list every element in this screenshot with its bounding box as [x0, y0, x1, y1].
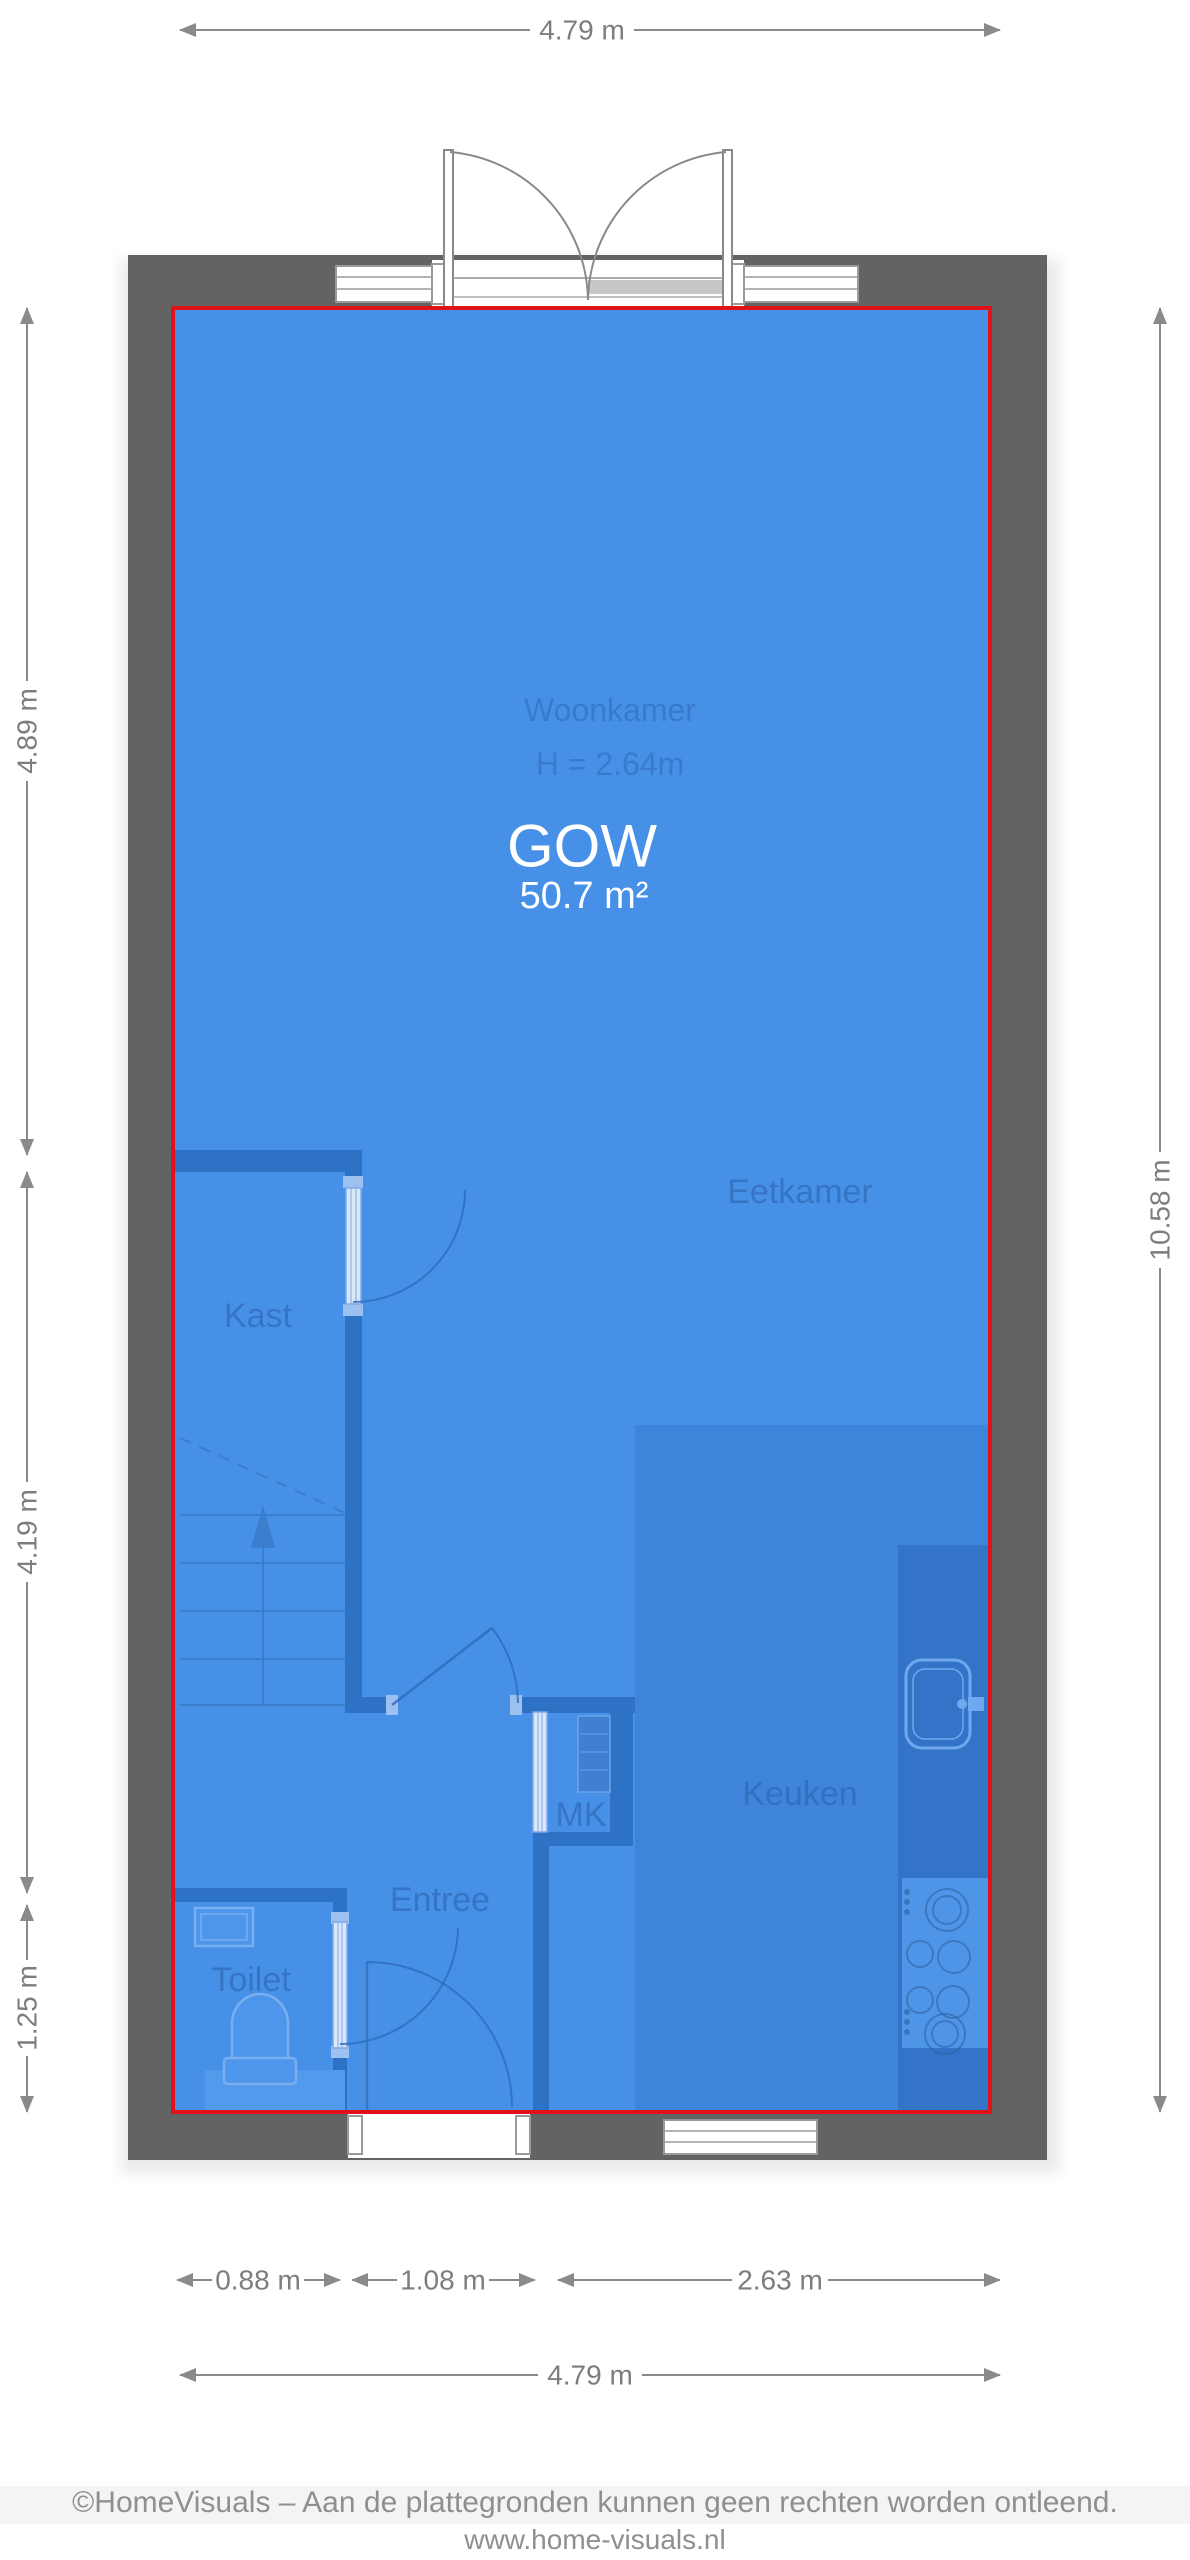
entree-keuken-wall	[533, 1845, 549, 2112]
mk-right-wall	[610, 1698, 633, 1845]
room-label-keuken: Keuken	[742, 1775, 857, 1813]
cooktop-icon	[902, 1878, 988, 2054]
hall-wall-left	[345, 1697, 388, 1713]
footer-website: www.home-visuals.nl	[463, 2524, 725, 2555]
kitchen-counter	[898, 1545, 988, 2112]
room-label-mk: MK	[556, 1796, 607, 1834]
svg-text:1.25 m: 1.25 m	[12, 1965, 43, 2051]
wall-bottom	[128, 2112, 1047, 2160]
kast-top-wall	[175, 1150, 362, 1172]
svg-text:0.88 m: 0.88 m	[215, 2265, 301, 2296]
floorplan-canvas: Woonkamer H = 2.64m GOW 50.7 m² Eetkamer…	[0, 0, 1190, 2560]
kast-right-wall-lower	[345, 1316, 362, 1700]
mk-bottom-wall	[533, 1832, 633, 1846]
room-label-kast: Kast	[224, 1297, 293, 1335]
svg-text:4.79 m: 4.79 m	[539, 15, 625, 46]
dimension-left-3: 1.25 m	[9, 1905, 45, 2112]
room-label-eetkamer: Eetkamer	[727, 1173, 873, 1211]
svg-text:4.89 m: 4.89 m	[12, 688, 43, 774]
floorplan-page: Woonkamer H = 2.64m GOW 50.7 m² Eetkamer…	[0, 0, 1190, 2560]
mk-door-icon	[533, 1712, 547, 1832]
area-size-label: 50.7 m²	[520, 875, 649, 917]
dimension-bottom-total: 4.79 m	[180, 2357, 1000, 2393]
dimension-top: 4.79 m	[180, 12, 1000, 48]
meter-panel-icon	[578, 1716, 610, 1792]
window-top-right-icon	[744, 266, 858, 302]
footer-copyright: ©HomeVisuals – Aan de plattegronden kunn…	[72, 2486, 1118, 2519]
dimension-bottom-3: 2.63 m	[558, 2262, 1000, 2298]
window-bottom-icon	[664, 2120, 817, 2154]
svg-text:10.58 m: 10.58 m	[1145, 1159, 1176, 1260]
room-label-toilet: Toilet	[211, 1961, 291, 1999]
area-code-label: GOW	[507, 813, 657, 880]
room-label-entree: Entree	[390, 1881, 490, 1919]
wall-left	[128, 255, 173, 2160]
toilet-top-wall	[175, 1888, 347, 1902]
top-wall-openings	[336, 150, 858, 308]
svg-text:1.08 m: 1.08 m	[400, 2265, 486, 2296]
dimension-left-1: 4.89 m	[9, 308, 45, 1155]
dimension-bottom-2: 1.08 m	[352, 2262, 535, 2298]
window-top-left-icon	[336, 266, 432, 302]
french-doors-icon	[432, 150, 744, 308]
ceiling-height-label: H = 2.64m	[536, 746, 685, 782]
dimension-right: 10.58 m	[1142, 308, 1178, 2112]
svg-text:2.63 m: 2.63 m	[737, 2265, 823, 2296]
wall-right	[990, 255, 1047, 2160]
dimension-left-2: 4.19 m	[9, 1172, 45, 1893]
svg-text:4.79 m: 4.79 m	[547, 2360, 633, 2391]
room-label-woonkamer: Woonkamer	[524, 692, 696, 728]
svg-text:4.19 m: 4.19 m	[12, 1489, 43, 1575]
dimension-bottom-1: 0.88 m	[177, 2262, 340, 2298]
